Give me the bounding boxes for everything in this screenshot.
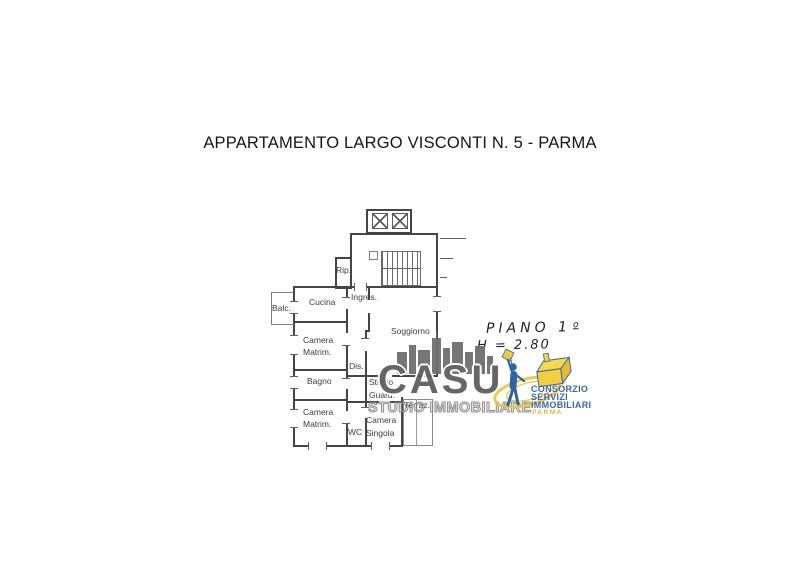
floorplan-scan-page: APPARTAMENTO LARGO VISCONTI N. 5 - PARMA (0, 0, 800, 566)
window-tick (326, 442, 327, 450)
casu-logo-text: CASU (378, 358, 503, 403)
door-tick (342, 345, 350, 346)
window-tick (371, 442, 372, 450)
room-label-line: Camera (303, 335, 333, 347)
wall-tick (440, 277, 447, 278)
wall-segment (293, 321, 348, 323)
wall-segment (293, 369, 348, 371)
door-opening (346, 378, 348, 389)
wall-tick (440, 238, 466, 239)
window-tick (290, 301, 298, 302)
window-tick (354, 283, 355, 291)
room-label-camera-matrim-1: Camera Matrim. (303, 335, 333, 358)
room-label-line: Matrim. (303, 419, 333, 431)
window-opening (293, 409, 295, 428)
person-icon (508, 360, 524, 405)
room-label-line: Matrim. (303, 347, 333, 359)
stair-newel-post (369, 251, 378, 260)
room-label-ingresso: Ingres. (351, 292, 377, 304)
door-opening (355, 286, 366, 288)
window-tick (290, 354, 298, 355)
window-opening (372, 445, 389, 447)
casu-watermark: CASU STUDIO IMMOBILIARE (368, 336, 494, 420)
window-tick (290, 376, 298, 377)
window-opening (436, 296, 438, 312)
room-label-line: Singola (366, 427, 396, 440)
room-label-cucina: Cucina (309, 297, 335, 309)
consorzio-logo: CONSORZIO SERVIZI IMMOBILIARI PARMA (487, 348, 592, 420)
window-tick (290, 388, 298, 389)
door-tick (342, 378, 350, 379)
window-opening (293, 335, 295, 355)
floor-note-text: PIANO 1 (486, 319, 571, 336)
stair-landing-line (381, 268, 421, 269)
elevator-cab-icon (392, 213, 408, 229)
room-label-line: Camera (303, 407, 333, 419)
wall-segment (293, 399, 348, 401)
consorzio-text-city: PARMA (532, 409, 563, 417)
window-tick (290, 427, 298, 428)
door-tick (342, 297, 350, 298)
wall-tick (440, 258, 453, 259)
window-tick (290, 313, 298, 314)
window-tick (389, 442, 390, 450)
door-opening (346, 411, 348, 423)
window-tick (433, 296, 441, 297)
window-tick (366, 283, 367, 291)
window-tick (433, 311, 441, 312)
door-opening (346, 333, 348, 345)
window-opening (309, 445, 326, 447)
window-tick (290, 335, 298, 336)
room-label-balcone: Balc. (272, 303, 291, 315)
page-title: APPARTAMENTO LARGO VISCONTI N. 5 - PARMA (0, 134, 800, 153)
door-opening (365, 338, 367, 351)
room-label-camera-matrim-2: Camera Matrim. (303, 407, 333, 430)
consorzio-text-line3: IMMOBILIARI (531, 401, 591, 409)
room-label-bagno: Bagno (307, 376, 332, 388)
room-label-wc: WC (348, 427, 362, 439)
room-label-rip: Rip. (336, 265, 351, 277)
door-tick (342, 423, 350, 424)
room-label-disimpegno: Dis. (349, 361, 364, 373)
window-tick (308, 442, 309, 450)
elevator-cab-icon (372, 213, 388, 229)
door-opening (346, 297, 348, 309)
handwritten-floor-note: PIANO 1o (486, 319, 579, 337)
floor-note-ordinal: o (573, 320, 579, 330)
house-icon (534, 350, 572, 386)
window-tick (290, 409, 298, 410)
